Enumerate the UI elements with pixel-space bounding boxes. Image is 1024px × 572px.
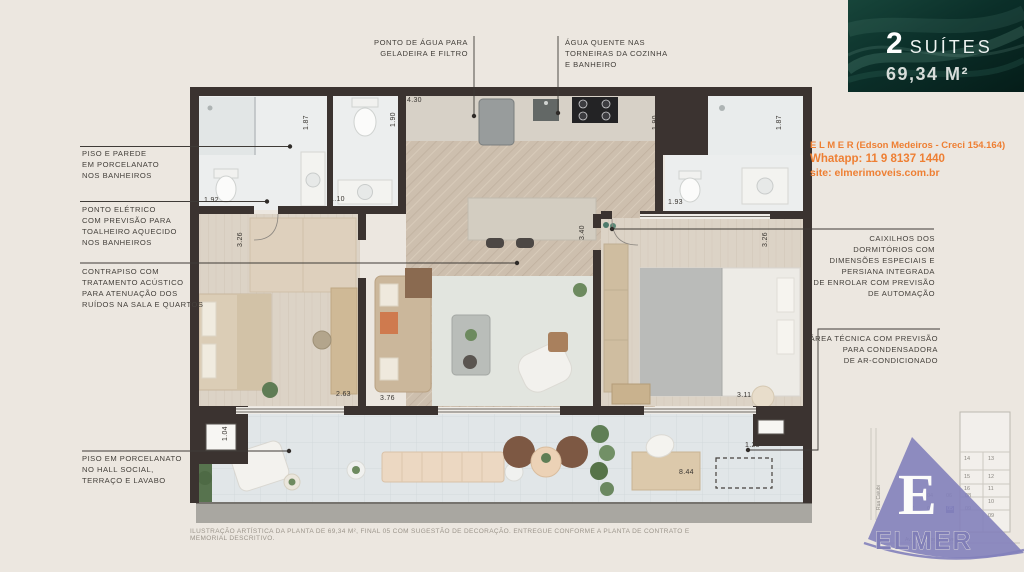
brand-wordmark: ELMER — [875, 527, 973, 555]
hero-text: 2 SUÍTES 69,34 M² — [886, 27, 993, 85]
callout-line: TORNEIRAS DA COZINHA — [565, 48, 668, 59]
callout-ponto-agua: PONTO DE ÁGUA PARA GELADEIRA E FILTRO — [348, 37, 468, 59]
logo-keyplan-block: Rua Caiubi 14131512161110090104060807030… — [850, 400, 1024, 572]
suites-label: SUÍTES — [910, 37, 993, 58]
dimension-label: 1.90 — [652, 115, 659, 130]
callout-line: DE ENROLAR COM PREVISÃO — [775, 277, 935, 288]
dimension-label: 8.44 — [679, 469, 694, 476]
callout-line: NO HALL SOCIAL, — [82, 464, 182, 475]
callout-line: PISO E PAREDE — [82, 148, 159, 159]
callout-line: DE AUTOMAÇÃO — [775, 288, 935, 299]
callout-line: DE AR-CONDICIONADO — [798, 355, 938, 366]
callout-line: NOS BANHEIROS — [82, 170, 159, 181]
callout-line: PERSIANA INTEGRADA — [775, 266, 935, 277]
dimension-label: 1.92 — [204, 197, 219, 204]
dimension-label: 3.26 — [762, 232, 769, 247]
callout-line: COM PREVISÃO PARA — [82, 215, 177, 226]
dimension-label: 3.26 — [237, 232, 244, 247]
callout-agua-quente: ÁGUA QUENTE NAS TORNEIRAS DA COZINHA E B… — [565, 37, 668, 70]
dimension-label: 3.76 — [380, 395, 395, 402]
callout-caixilhos: CAIXILHOS DOS DORMITÓRIOS COM DIMENSÕES … — [775, 233, 935, 299]
callout-line: ÁGUA QUENTE NAS — [565, 37, 668, 48]
callout-line: PARA ATENUAÇÃO DOS — [82, 288, 203, 299]
broker-name: E L M E R (Edson Medeiros - Creci 154.16… — [810, 139, 1005, 152]
callout-line: EM PORCELANATO — [82, 159, 159, 170]
callout-contrapiso-acustico: CONTRAPISO COM TRATAMENTO ACÚSTICO PARA … — [82, 266, 203, 310]
callout-line: TOALHEIRO AQUECIDO — [82, 226, 177, 237]
dimension-label: 1.87 — [303, 115, 310, 130]
callout-area-tecnica: ÁREA TÉCNICA COM PREVISÃO PARA CONDENSAD… — [798, 333, 938, 366]
broker-site-link: site: elmerimoveis.com.br — [810, 166, 1005, 180]
callout-line: NOS BANHEIROS — [82, 237, 177, 248]
callout-line: GELADEIRA E FILTRO — [348, 48, 468, 59]
callout-line: CAIXILHOS DOS — [775, 233, 935, 244]
logo-initial: E — [898, 462, 937, 527]
hero-badge: 2 SUÍTES 69,34 M² — [848, 0, 1024, 92]
dimension-label: 1.25 — [745, 442, 760, 449]
broker-contact: E L M E R (Edson Medeiros - Creci 154.16… — [810, 139, 1005, 180]
callout-line: CONTRAPISO COM — [82, 266, 203, 277]
disclaimer-text: ILUSTRAÇÃO ARTÍSTICA DA PLANTA DE 69,34 … — [190, 528, 705, 542]
broker-whatsapp: Whatapp: 11 9 8137 1440 — [810, 152, 1005, 166]
callout-line: PONTO ELÉTRICO — [82, 204, 177, 215]
callout-line: TERRAÇO E LAVABO — [82, 475, 182, 486]
callout-ponto-eletrico: PONTO ELÉTRICO COM PREVISÃO PARA TOALHEI… — [82, 204, 177, 248]
dimension-label: 1.90 — [390, 112, 397, 127]
dimension-label: 1.87 — [776, 115, 783, 130]
unit-area: 69,34 M² — [886, 64, 993, 85]
elmer-logo: Av. Prof. Alfonso Bovero E ELMER — [850, 400, 1024, 572]
callout-line: ÁREA TÉCNICA COM PREVISÃO — [798, 333, 938, 344]
dimension-label: 1.04 — [222, 426, 229, 441]
callout-line: PISO EM PORCELANATO — [82, 453, 182, 464]
dimension-label: 3.40 — [579, 225, 586, 240]
suites-count: 2 — [886, 27, 903, 61]
dimension-label: 4.30 — [407, 97, 422, 104]
callout-line: E BANHEIRO — [565, 59, 668, 70]
callout-line: TRATAMENTO ACÚSTICO — [82, 277, 203, 288]
callout-line: PARA CONDENSADORA — [798, 344, 938, 355]
dimension-label: 1.10 — [330, 196, 345, 203]
callout-piso-porcelanato-hall: PISO EM PORCELANATO NO HALL SOCIAL, TERR… — [82, 453, 182, 486]
callout-piso-parede-banheiros: PISO E PAREDE EM PORCELANATO NOS BANHEIR… — [82, 148, 159, 181]
dimension-label: 1.93 — [668, 199, 683, 206]
callout-line: DIMENSÕES ESPECIAIS E — [775, 255, 935, 266]
dimension-label: 3.11 — [737, 392, 751, 399]
callout-line: DORMITÓRIOS COM — [775, 244, 935, 255]
callout-line: PONTO DE ÁGUA PARA — [348, 37, 468, 48]
dimension-label: 2.63 — [336, 391, 351, 398]
callout-line: RUÍDOS NA SALA E QUARTOS — [82, 299, 203, 310]
flyer-canvas: 1.871.904.301.901.871.921.101.933.263.40… — [0, 0, 1024, 572]
